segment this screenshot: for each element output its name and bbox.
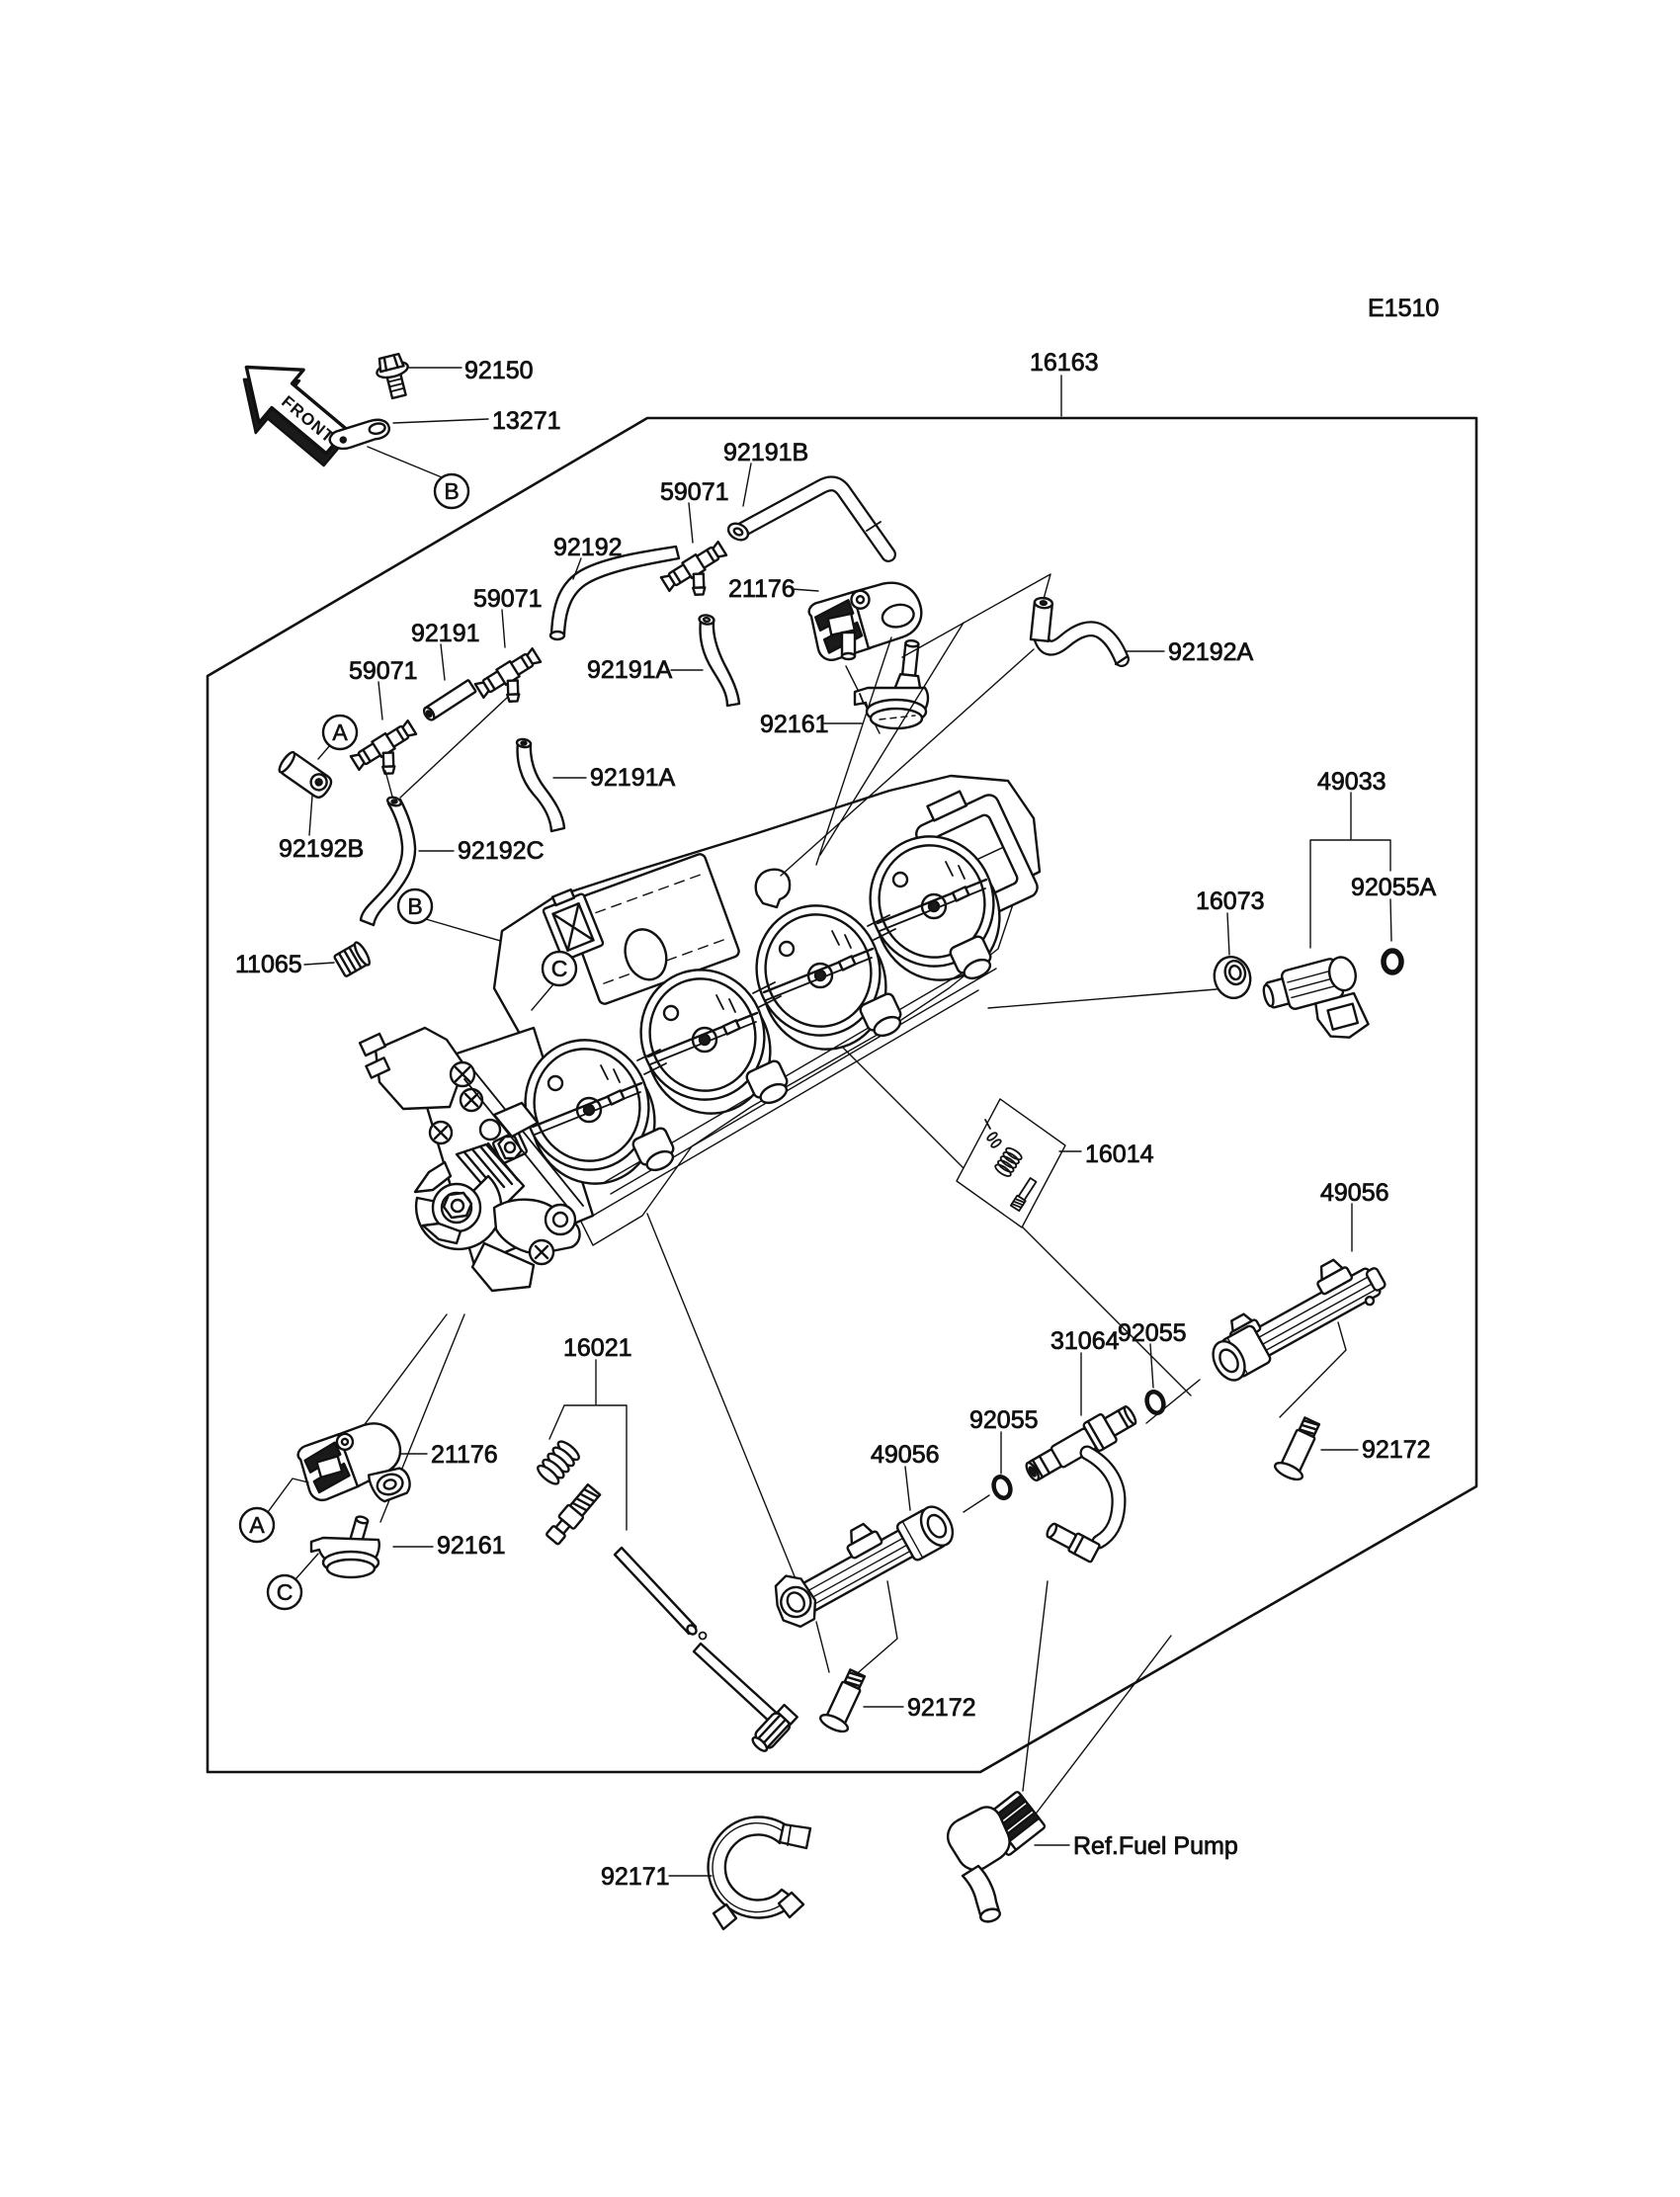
svg-text:49056: 49056 (1320, 1179, 1389, 1207)
svg-text:B: B (407, 893, 422, 919)
svg-text:59071: 59071 (473, 585, 543, 613)
svg-text:16014: 16014 (1085, 1141, 1154, 1168)
svg-text:21176: 21176 (728, 575, 796, 603)
svg-text:59071: 59071 (349, 657, 418, 685)
svg-text:C: C (551, 956, 568, 981)
svg-text:92055: 92055 (969, 1406, 1039, 1434)
svg-text:E1510: E1510 (1368, 295, 1439, 322)
svg-text:59071: 59071 (660, 478, 729, 506)
svg-text:11065: 11065 (235, 951, 302, 978)
svg-text:92191B: 92191B (723, 439, 808, 466)
svg-text:92055: 92055 (1118, 1319, 1187, 1347)
svg-text:92192C: 92192C (458, 837, 545, 865)
svg-text:49033: 49033 (1317, 768, 1386, 796)
svg-text:21176: 21176 (431, 1441, 498, 1469)
svg-text:92192B: 92192B (279, 835, 364, 863)
svg-text:92055A: 92055A (1351, 874, 1437, 901)
svg-text:16073: 16073 (1196, 887, 1265, 915)
svg-text:92192: 92192 (553, 534, 623, 561)
svg-text:A: A (249, 1512, 265, 1538)
svg-text:13271: 13271 (492, 407, 561, 435)
svg-text:92172: 92172 (1362, 1436, 1431, 1464)
svg-text:92161: 92161 (437, 1532, 506, 1560)
svg-text:92191: 92191 (411, 620, 480, 647)
svg-text:92161: 92161 (760, 711, 829, 738)
svg-text:C: C (277, 1579, 294, 1605)
svg-text:16021: 16021 (563, 1334, 632, 1362)
svg-text:92191A: 92191A (590, 764, 676, 792)
svg-text:31064: 31064 (1050, 1327, 1120, 1355)
svg-text:B: B (444, 478, 459, 504)
svg-text:92150: 92150 (464, 357, 534, 384)
svg-text:92192A: 92192A (1168, 638, 1254, 666)
svg-text:16163: 16163 (1030, 349, 1099, 377)
svg-text:Ref.Fuel Pump: Ref.Fuel Pump (1073, 1832, 1238, 1860)
svg-text:92191A: 92191A (587, 656, 673, 684)
svg-text:A: A (332, 719, 348, 745)
svg-text:49056: 49056 (871, 1441, 940, 1469)
svg-text:92172: 92172 (907, 1694, 976, 1722)
svg-text:92171: 92171 (601, 1863, 670, 1891)
